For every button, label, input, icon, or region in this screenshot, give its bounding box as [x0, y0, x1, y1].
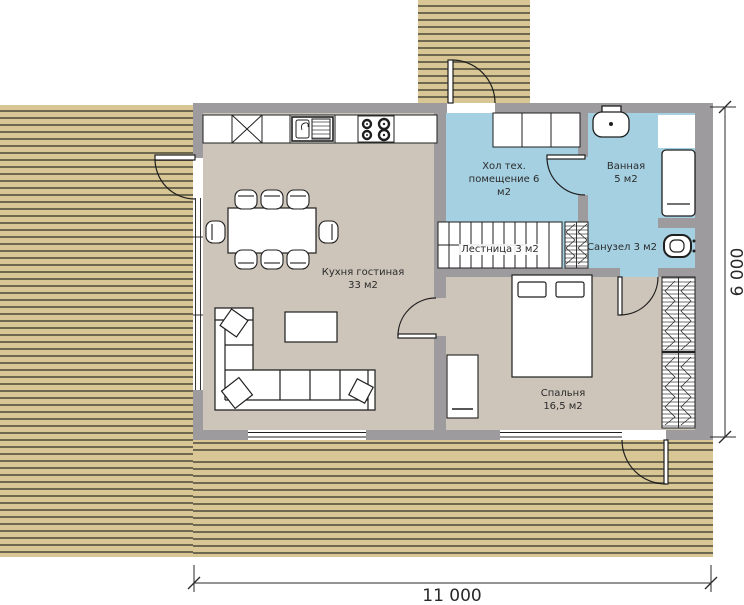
bathroom-cabinet	[658, 115, 695, 148]
room-name: Хол тех.	[444, 160, 564, 173]
window-left	[193, 198, 203, 390]
dimension-height-label: 6 000	[728, 232, 744, 312]
floor-plan-drawing	[0, 0, 744, 605]
room-area: 33 м2	[303, 279, 423, 292]
room-label-bedroom: Спальня 16,5 м2	[503, 387, 623, 413]
room-area: 16,5 м2	[503, 400, 623, 413]
washbasin-icon	[593, 106, 629, 137]
room-label-wc: Санузел 3 м2	[562, 241, 682, 254]
bedroom-terrace-door	[622, 440, 668, 484]
room-name: помещение 6	[444, 173, 564, 186]
bedroom-closet	[662, 277, 695, 428]
room-label-hall: Хол тех. помещение 6 м2	[444, 160, 564, 199]
window-bottom-bedroom	[500, 430, 622, 440]
hall-wardrobe	[493, 113, 580, 147]
floor-plan: Кухня гостиная 33 м2 Хол тех. помещение …	[0, 0, 744, 605]
double-bed	[512, 275, 592, 377]
room-label-kitchen-living: Кухня гостиная 33 м2	[303, 266, 423, 292]
dining-table	[228, 208, 316, 253]
room-name: Ванная	[576, 160, 676, 173]
dresser	[447, 355, 478, 418]
room-name: Спальня	[503, 387, 623, 400]
window-bottom-living	[248, 430, 366, 440]
room-label-bathroom: Ванная 5 м2	[576, 160, 676, 186]
room-name: Кухня гостиная	[303, 266, 423, 279]
room-area: 5 м2	[576, 173, 676, 186]
dimension-width-label: 11 000	[392, 586, 512, 605]
entry-door	[448, 60, 495, 103]
wc-bedroom-door	[618, 277, 658, 315]
room-label-stairs: Лестница 3 м2	[440, 243, 560, 256]
left-terrace-door	[155, 155, 195, 199]
coffee-table	[285, 312, 337, 342]
room-name: Санузел 3 м2	[587, 242, 657, 253]
room-area: м2	[444, 186, 564, 199]
living-bedroom-door	[398, 298, 436, 338]
room-name: Лестница 3 м2	[459, 244, 541, 255]
